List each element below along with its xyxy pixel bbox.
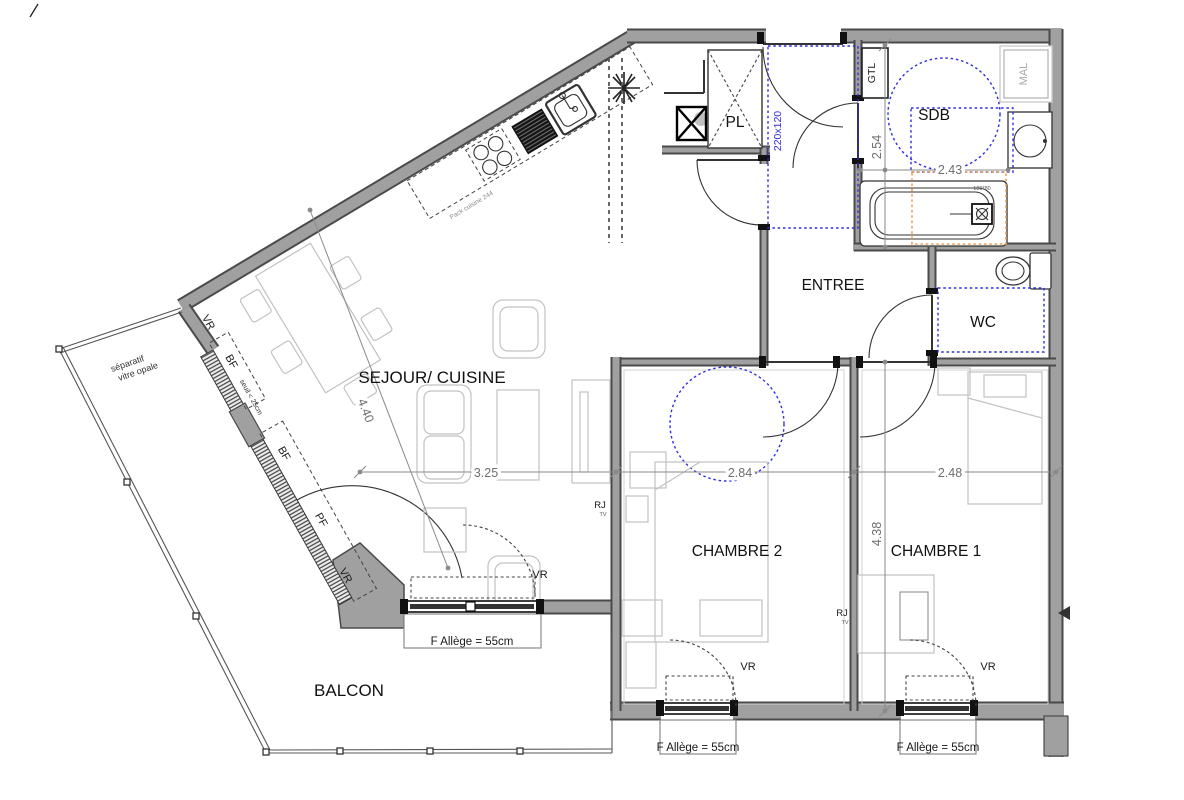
dim-sejour-width: 3.25	[474, 466, 498, 480]
sejour-window-allege-note: F Allège = 55cm	[431, 636, 514, 648]
washbasin	[1008, 112, 1052, 168]
room-label-sejour: SEJOUR/ CUISINE	[358, 368, 505, 387]
mal-box: MAL	[1000, 46, 1052, 102]
dim-sdb-width: 2.43	[938, 163, 962, 177]
chambre2-window-allege-note: F Allège = 55cm	[657, 742, 740, 754]
bathtub-size-label: 180*80	[973, 186, 990, 192]
gtl-label: GTL	[866, 63, 878, 84]
chambre1-window-allege-note: F Allège = 55cm	[897, 742, 980, 754]
room-label-sdb: SDB	[918, 107, 950, 124]
mal-label: MAL	[1018, 63, 1030, 86]
dim-chambres-depth: 4.38	[870, 522, 884, 546]
sejour-window-vr-label: VR	[532, 569, 547, 581]
chambre2-window-vr-label: VR	[740, 661, 755, 673]
sejour-rj-outlet-label: RJ	[594, 500, 606, 511]
dim-sdb-height: 2.54	[870, 135, 884, 159]
dim-chambre2-width: 2.84	[728, 466, 752, 480]
room-label-wc: WC	[970, 314, 996, 331]
background	[0, 0, 1184, 800]
closet-label-pl: PL	[726, 114, 745, 131]
floor-plan: séparatif vitre opale VR BF seuil < 25cm…	[0, 0, 1184, 800]
room-label-chambre2: CHAMBRE 2	[692, 543, 782, 560]
room-label-entree: ENTREE	[802, 277, 865, 294]
room-label-balcon: BALCON	[314, 681, 384, 700]
dim-chambre1-width: 2.48	[938, 466, 962, 480]
gtl-box: GTL	[862, 48, 888, 98]
pl-closet	[708, 50, 762, 148]
room-label-chambre1: CHAMBRE 1	[891, 543, 981, 560]
chambre1-rj-outlet-label: RJ	[836, 608, 848, 619]
chambre1-window-vr-label: VR	[980, 661, 995, 673]
sejour-tv-outlet-label: TV	[599, 512, 606, 518]
chambre1-tv-outlet-label: TV	[841, 620, 848, 626]
entry-door-size-label: 220x120	[772, 111, 784, 151]
